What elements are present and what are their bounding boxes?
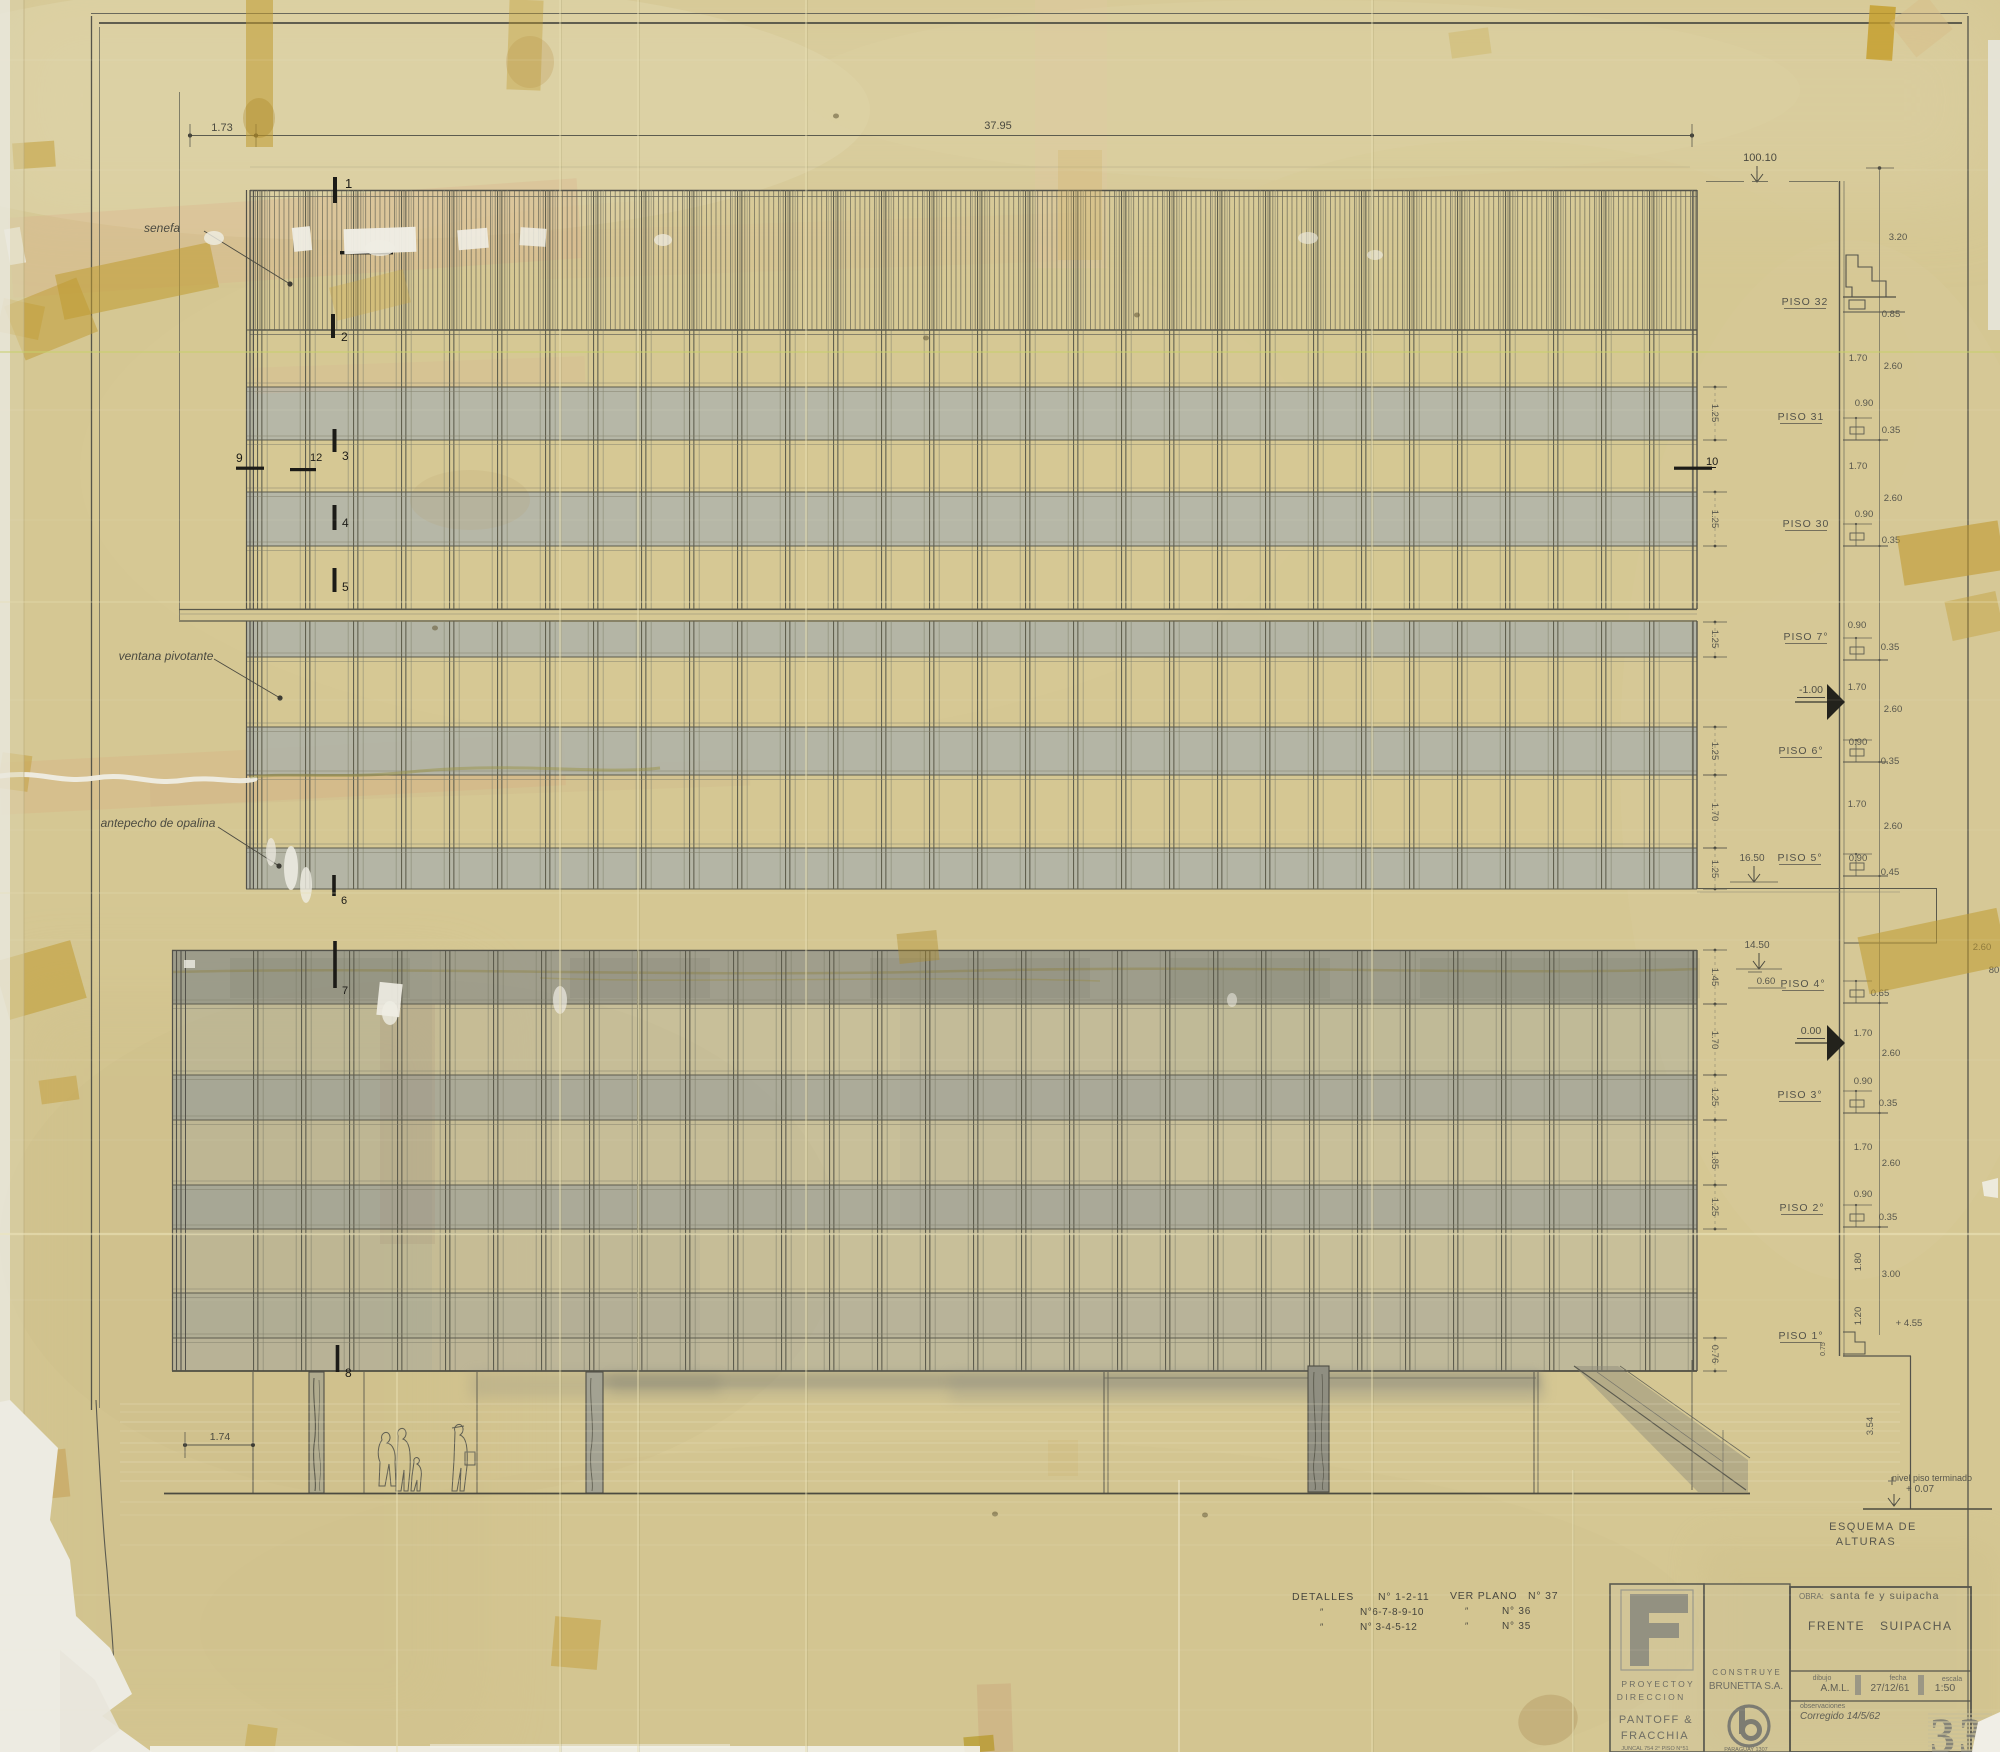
svg-text:6: 6 [341, 895, 347, 907]
svg-text:1.85: 1.85 [1709, 1151, 1720, 1170]
svg-text:ventana pivotante: ventana pivotante [119, 649, 214, 663]
svg-text:0.90: 0.90 [1854, 1189, 1873, 1200]
svg-text:PISO 32: PISO 32 [1782, 296, 1829, 308]
svg-text:0.90: 0.90 [1848, 620, 1867, 631]
svg-text:1.74: 1.74 [210, 1431, 231, 1443]
svg-text:+ 0.07: + 0.07 [1906, 1484, 1935, 1495]
svg-text:SUIPACHA: SUIPACHA [1880, 1619, 1952, 1633]
svg-text:nivel piso terminado: nivel piso terminado [1892, 1473, 1972, 1483]
svg-text:fecha: fecha [1889, 1675, 1906, 1682]
svg-text:PISO 1°: PISO 1° [1778, 1330, 1823, 1342]
svg-text:37.95: 37.95 [984, 120, 1012, 132]
svg-text:N° 1-2-11: N° 1-2-11 [1378, 1591, 1429, 1603]
svg-text:BRUNETTA S.A.: BRUNETTA S.A. [1709, 1681, 1783, 1692]
svg-text:ESQUEMA DE: ESQUEMA DE [1829, 1521, 1917, 1533]
svg-text:1.70: 1.70 [1848, 799, 1867, 810]
svg-text:1.70: 1.70 [1854, 1142, 1873, 1153]
svg-text:27/12/61: 27/12/61 [1871, 1683, 1910, 1694]
svg-text:PISO 7°: PISO 7° [1783, 631, 1828, 643]
svg-text:-1.00: -1.00 [1799, 684, 1823, 696]
svg-text:1.25: 1.25 [1709, 860, 1720, 879]
svg-text:10: 10 [1706, 456, 1718, 468]
svg-text:0.00: 0.00 [1801, 1025, 1822, 1037]
svg-text:1.70: 1.70 [1848, 682, 1867, 693]
svg-text:1.70: 1.70 [1709, 1031, 1720, 1050]
svg-text:2.60: 2.60 [1882, 1048, 1901, 1059]
svg-text:0.75: 0.75 [1820, 1342, 1827, 1356]
svg-text:dibujo: dibujo [1813, 1675, 1832, 1682]
svg-text:senefa: senefa [144, 221, 180, 235]
svg-text:1.25: 1.25 [1709, 1198, 1720, 1217]
svg-text:PARAGUAY 1307: PARAGUAY 1307 [1724, 1747, 1767, 1752]
svg-text:N° 35: N° 35 [1502, 1621, 1531, 1632]
svg-text:PISO 4°: PISO 4° [1780, 978, 1825, 990]
svg-text:0.35: 0.35 [1879, 1098, 1898, 1109]
svg-text:1.70: 1.70 [1854, 1028, 1873, 1039]
svg-text:1.25: 1.25 [1709, 742, 1720, 761]
svg-text:0.35: 0.35 [1879, 1212, 1898, 1223]
svg-text:observaciones: observaciones [1800, 1703, 1846, 1710]
svg-text:2: 2 [341, 330, 348, 344]
svg-text:Corregido 14/5/62: Corregido 14/5/62 [1800, 1711, 1880, 1722]
svg-text:FRENTE: FRENTE [1808, 1619, 1865, 1633]
svg-text:1.25: 1.25 [1709, 404, 1720, 423]
svg-text:14.50: 14.50 [1744, 940, 1769, 951]
svg-text:1.45: 1.45 [1709, 968, 1720, 987]
svg-text:0.60: 0.60 [1757, 976, 1776, 987]
svg-text:PANTOFF &: PANTOFF & [1619, 1714, 1693, 1726]
svg-text:12: 12 [310, 452, 322, 464]
svg-text:1.70: 1.70 [1849, 353, 1868, 364]
svg-text:1.70: 1.70 [1849, 461, 1868, 472]
svg-text:0.90: 0.90 [1855, 509, 1874, 520]
svg-text:1.70: 1.70 [1709, 803, 1720, 822]
svg-text:9: 9 [236, 451, 243, 465]
svg-text:1.73: 1.73 [211, 122, 232, 134]
svg-text:0.90: 0.90 [1849, 737, 1868, 748]
svg-text:1: 1 [345, 176, 352, 191]
svg-text:0.35: 0.35 [1881, 642, 1900, 653]
svg-text:0.35: 0.35 [1882, 425, 1901, 436]
svg-text:2.60: 2.60 [1884, 493, 1903, 504]
svg-text:5: 5 [342, 580, 349, 594]
svg-text:0.85: 0.85 [1882, 309, 1901, 320]
svg-text:0.45: 0.45 [1881, 867, 1900, 878]
svg-text:16.50: 16.50 [1739, 853, 1764, 864]
svg-text:1.25: 1.25 [1709, 1088, 1720, 1107]
svg-text:0.90: 0.90 [1855, 398, 1874, 409]
svg-text:ALTURAS: ALTURAS [1836, 1536, 1896, 1548]
svg-text:3: 3 [342, 449, 349, 463]
svg-text:N° 3-4-5-12: N° 3-4-5-12 [1360, 1622, 1417, 1633]
svg-text:1.25: 1.25 [1709, 630, 1720, 649]
svg-text:PISO 31: PISO 31 [1778, 411, 1825, 423]
svg-text:D I R E C C I O N: D I R E C C I O N [1617, 1692, 1684, 1702]
svg-text:3.54: 3.54 [1865, 1417, 1876, 1436]
svg-text:antepecho de opalina: antepecho de opalina [101, 816, 216, 830]
svg-text:P R O Y E C T O Y: P R O Y E C T O Y [1621, 1679, 1693, 1689]
svg-text:2.60: 2.60 [1884, 704, 1903, 715]
svg-text:FRACCHIA: FRACCHIA [1621, 1730, 1689, 1742]
svg-text:C O N S T R U Y E: C O N S T R U Y E [1712, 1668, 1779, 1677]
svg-text:7: 7 [342, 985, 348, 997]
svg-text:PISO 6°: PISO 6° [1778, 745, 1823, 757]
svg-text:0.90: 0.90 [1854, 1076, 1873, 1087]
svg-text:0.35: 0.35 [1881, 756, 1900, 767]
svg-text:3.00: 3.00 [1882, 1269, 1901, 1280]
svg-text:100.10: 100.10 [1743, 152, 1777, 164]
svg-text:1.80: 1.80 [1853, 1253, 1864, 1272]
svg-text:1:50: 1:50 [1935, 1682, 1956, 1694]
svg-text:0.90: 0.90 [1849, 853, 1868, 864]
svg-text:JUNCAL 754 2° PISO N°51: JUNCAL 754 2° PISO N°51 [1621, 1746, 1688, 1752]
svg-text:N° 36: N° 36 [1502, 1606, 1531, 1617]
svg-text:PISO 5°: PISO 5° [1777, 852, 1822, 864]
svg-text:PISO 2°: PISO 2° [1779, 1202, 1824, 1214]
svg-text:+ 4.55: + 4.55 [1896, 1318, 1923, 1329]
svg-text:3.20: 3.20 [1889, 232, 1908, 243]
svg-text:PISO 3°: PISO 3° [1777, 1089, 1822, 1101]
svg-text:8: 8 [345, 1366, 352, 1380]
svg-text:OBRA:: OBRA: [1799, 1592, 1824, 1601]
svg-text:4: 4 [342, 516, 349, 530]
svg-text:A.M.L.: A.M.L. [1821, 1683, 1850, 1694]
svg-text:2.60: 2.60 [1884, 361, 1903, 372]
svg-text:DETALLES: DETALLES [1292, 1591, 1355, 1603]
svg-text:2.60: 2.60 [1882, 1158, 1901, 1169]
svg-text:1.20: 1.20 [1853, 1307, 1864, 1326]
svg-text:0.76: 0.76 [1709, 1345, 1720, 1364]
svg-text:N°6-7-8-9-10: N°6-7-8-9-10 [1360, 1607, 1424, 1618]
